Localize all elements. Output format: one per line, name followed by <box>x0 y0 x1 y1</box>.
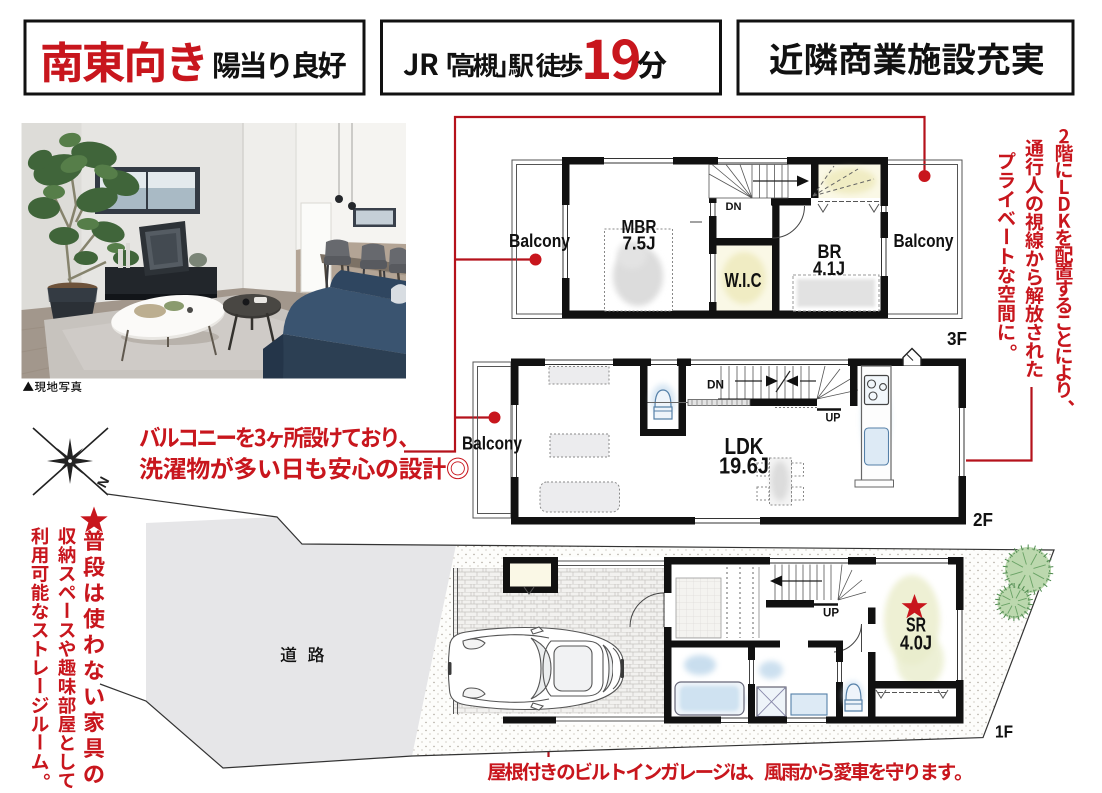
svg-text:1F: 1F <box>995 722 1013 742</box>
svg-text:Balcony: Balcony <box>509 231 570 251</box>
svg-text:W.I.C: W.I.C <box>725 270 762 292</box>
svg-text:Balcony: Balcony <box>894 231 954 251</box>
svg-text:3F: 3F <box>947 329 967 349</box>
svg-text:4.1J: 4.1J <box>813 258 845 280</box>
svg-text:DN: DN <box>707 380 724 392</box>
svg-text:19.6J: 19.6J <box>719 453 769 479</box>
svg-text:Balcony: Balcony <box>462 434 522 454</box>
svg-text:UP: UP <box>823 608 839 620</box>
svg-text:4.0J: 4.0J <box>900 633 932 655</box>
svg-text:7.5J: 7.5J <box>623 233 656 254</box>
svg-text:UP: UP <box>826 413 841 425</box>
svg-text:2F: 2F <box>973 510 993 530</box>
svg-text:DN: DN <box>726 201 742 213</box>
